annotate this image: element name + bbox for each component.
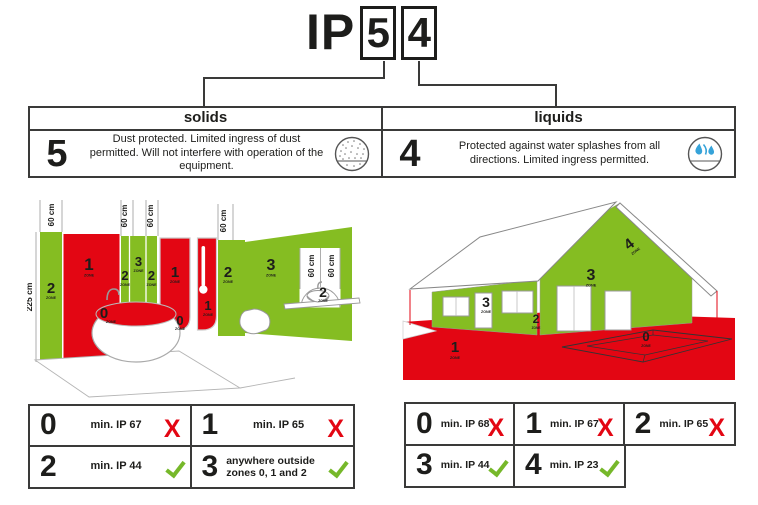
toilet [240, 309, 270, 334]
zone3-requirement: 3 min. IP 44 [406, 444, 515, 486]
connector-liquids-vertical [555, 84, 557, 106]
zone2-label: 2 [121, 268, 128, 283]
bathroom-height-label: 225 cm [27, 282, 34, 311]
zone1-requirement: 1 min. IP 65 X [192, 406, 354, 447]
outdoor-ip-table-top: 0 min. IP 68 X 1 min. IP 67 X 2 min. IP … [404, 402, 736, 446]
dim-60cm: 60 cm [47, 204, 56, 227]
dim-60cm: 60 cm [120, 205, 129, 228]
zone1-requirement: 1 min. IP 67 X [515, 404, 624, 444]
shower-rail [202, 246, 206, 286]
liquids-header: liquids [383, 108, 734, 131]
svg-text:ZONE: ZONE [134, 269, 145, 273]
zone3-label: 3 [267, 257, 276, 274]
outdoor-ip-table-bottom: 3 min. IP 44 4 min. IP 23 [404, 444, 626, 488]
dim-60cm: 60 cm [327, 255, 336, 278]
svg-text:ZONE: ZONE [170, 280, 181, 284]
zone3-requirement: 3 anywhere outside zones 0, 1 and 2 [192, 447, 354, 488]
window [502, 291, 533, 313]
x-mark-icon: X [708, 416, 725, 441]
zone3-label: 3 [482, 294, 490, 310]
ip54-infographic: IP 5 4 solids 5 Dust protected. Limited … [0, 0, 758, 505]
check-icon [170, 458, 181, 484]
svg-text:ZONE: ZONE [318, 299, 328, 303]
dust-protection-icon [333, 135, 371, 173]
solids-description: Dust protected. Limited ingress of dust … [88, 133, 325, 174]
ratings-table: solids 5 Dust protected. Limited ingress… [28, 106, 736, 178]
liquids-description: Protected against water splashes from al… [441, 140, 678, 168]
shower-head [199, 285, 207, 293]
svg-text:ZONE: ZONE [481, 310, 492, 314]
solids-section: solids 5 Dust protected. Limited ingress… [30, 108, 383, 176]
title-solids-digit-box: 5 [360, 6, 396, 60]
dim-60cm: 60 cm [307, 255, 316, 278]
svg-text:ZONE: ZONE [641, 344, 651, 348]
liquids-digit: 4 [383, 135, 437, 173]
zone2-label: 2 [319, 284, 327, 300]
connector-liquids-stub [418, 61, 420, 86]
water-splash-icon [686, 135, 724, 173]
svg-text:ZONE: ZONE [532, 326, 541, 330]
zone2-label: 2 [148, 268, 155, 283]
zone0-label: 0 [642, 329, 649, 344]
bathroom-ip-table: 0 min. IP 67 X 1 min. IP 65 X 2 min. IP … [28, 404, 355, 489]
x-mark-icon: X [327, 417, 344, 442]
zone1-label: 1 [451, 339, 459, 356]
connector-liquids-horizontal [418, 84, 557, 86]
svg-text:ZONE: ZONE [106, 320, 117, 324]
svg-text:ZONE: ZONE [120, 283, 131, 287]
check-icon [333, 458, 344, 484]
connector-solids-horizontal [203, 77, 385, 79]
zone0-label: 0 [176, 313, 183, 328]
zone1-label: 1 [171, 264, 179, 281]
x-mark-icon: X [164, 417, 181, 442]
svg-text:ZONE: ZONE [84, 274, 95, 278]
check-icon [604, 457, 615, 483]
zone3-label: 3 [587, 267, 596, 284]
x-mark-icon: X [488, 416, 505, 441]
solids-header: solids [30, 108, 381, 131]
svg-text:ZONE: ZONE [450, 356, 461, 360]
connector-solids-vertical [203, 77, 205, 106]
svg-text:ZONE: ZONE [223, 280, 234, 284]
check-icon [493, 457, 504, 483]
x-mark-icon: X [597, 416, 614, 441]
svg-text:ZONE: ZONE [203, 313, 214, 317]
svg-text:ZONE: ZONE [266, 274, 277, 278]
patio-door [605, 291, 631, 330]
svg-text:ZONE: ZONE [586, 284, 597, 288]
page-title: IP 5 4 [306, 6, 437, 60]
zone2-label: 2 [47, 280, 55, 297]
liquids-section: liquids 4 Protected against water splash… [383, 108, 734, 176]
zone4-requirement: 4 min. IP 23 [515, 444, 624, 486]
zone1-label: 1 [84, 255, 93, 274]
dim-60cm: 60 cm [219, 210, 228, 233]
zone3-label: 3 [135, 254, 142, 269]
solids-digit: 5 [30, 135, 84, 173]
outdoor-zones-diagram: 3 ZONE 3 ZONE 4 ZONE 2 ZONE 1 ZONE 0 ZON… [400, 192, 740, 392]
svg-text:ZONE: ZONE [175, 327, 186, 331]
zone0-requirement: 0 min. IP 67 X [30, 406, 192, 447]
zone0-requirement: 0 min. IP 68 X [406, 404, 515, 444]
zone1-label: 1 [204, 298, 211, 313]
zone2-requirement: 2 min. IP 65 X [625, 404, 734, 444]
dim-60cm: 60 cm [146, 205, 155, 228]
svg-text:ZONE: ZONE [46, 296, 57, 300]
title-ip: IP [306, 6, 355, 60]
zone2-label: 2 [224, 264, 232, 281]
bathroom-zones-diagram: 225 cm 60 cm 60 cm 60 cm 60 cm [27, 190, 367, 400]
title-liquids-digit-box: 4 [401, 6, 437, 60]
svg-text:ZONE: ZONE [147, 283, 158, 287]
zone2-requirement: 2 min. IP 44 [30, 447, 192, 488]
zone2-label: 2 [533, 312, 540, 326]
